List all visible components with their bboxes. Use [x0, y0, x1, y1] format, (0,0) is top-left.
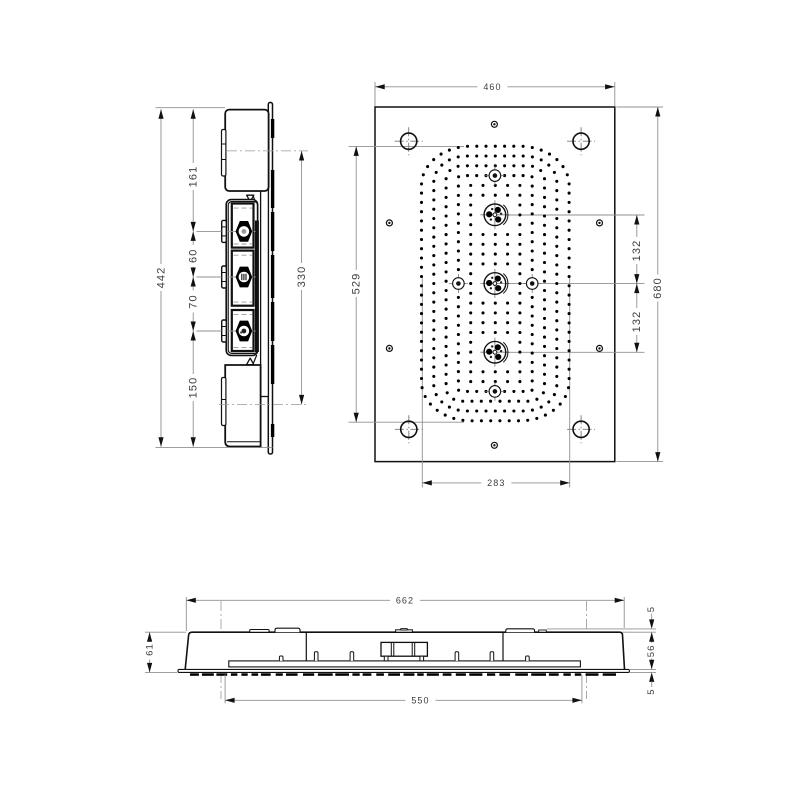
svg-text:150: 150	[188, 377, 200, 399]
svg-text:132: 132	[631, 311, 643, 333]
svg-text:61: 61	[144, 643, 155, 656]
svg-text:550: 550	[411, 696, 429, 706]
svg-text:442: 442	[155, 267, 167, 289]
svg-text:60: 60	[188, 249, 200, 263]
svg-text:5: 5	[646, 606, 657, 612]
svg-text:283: 283	[487, 478, 505, 488]
svg-text:161: 161	[188, 166, 200, 188]
svg-text:5: 5	[646, 688, 657, 694]
svg-text:56: 56	[646, 644, 657, 657]
svg-text:460: 460	[483, 82, 501, 92]
svg-text:662: 662	[396, 596, 414, 606]
svg-text:330: 330	[296, 266, 308, 288]
svg-text:132: 132	[631, 240, 643, 262]
svg-text:529: 529	[351, 273, 363, 295]
svg-text:680: 680	[652, 277, 664, 299]
svg-text:70: 70	[188, 294, 200, 308]
